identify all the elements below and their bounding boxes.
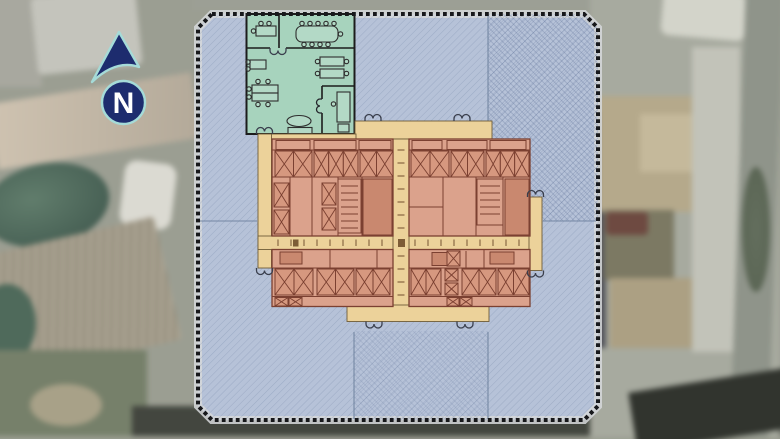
desk — [288, 128, 312, 135]
north-arrow-needle-icon — [92, 32, 139, 82]
elevator-shaft — [411, 269, 426, 295]
elevator-shaft — [514, 269, 530, 295]
elevator-shaft — [479, 269, 496, 295]
elevator-shaft — [426, 269, 441, 295]
elevator-shaft — [356, 269, 373, 295]
elevator-shaft — [430, 151, 449, 177]
elevator-shaft — [411, 151, 430, 177]
chair — [308, 21, 312, 25]
chair — [256, 102, 260, 106]
stair-shaft — [447, 298, 459, 307]
chair — [315, 59, 319, 63]
elevator-shaft — [451, 151, 468, 177]
chair — [316, 21, 320, 25]
elevator-shaft — [498, 269, 514, 295]
desk — [256, 26, 276, 36]
elevator-shaft — [314, 151, 329, 177]
chair — [247, 95, 251, 99]
elevator-shaft — [275, 269, 294, 295]
chair — [267, 21, 271, 25]
elevator-shaft — [343, 151, 358, 177]
stair-shaft — [289, 298, 302, 307]
corridor-band-right — [529, 197, 542, 271]
table — [287, 116, 311, 127]
elevator-shaft — [377, 151, 394, 177]
stair-shaft — [275, 298, 288, 307]
desk — [320, 57, 344, 66]
elevator-shaft — [336, 269, 355, 295]
floor-plan-overlay: N — [0, 0, 780, 439]
stair-shaft — [322, 183, 336, 205]
desk — [252, 93, 278, 101]
conference-table — [296, 26, 338, 42]
core-room-shaded — [490, 252, 514, 264]
chair — [246, 60, 250, 64]
chair — [259, 21, 263, 25]
elevator-shaft — [462, 269, 479, 295]
map-scene: N — [0, 0, 780, 439]
chair — [247, 87, 251, 91]
north-arrow: N — [92, 32, 145, 124]
desk — [252, 85, 278, 93]
elevator-shaft — [500, 151, 514, 177]
stair-shaft — [460, 298, 472, 307]
corridor-strip — [258, 134, 356, 139]
office-suite — [246, 14, 355, 134]
corridor-marker — [398, 239, 405, 247]
stair-shaft — [447, 251, 460, 266]
chair — [331, 102, 335, 106]
elevator-shaft — [275, 151, 294, 177]
chair — [266, 79, 270, 83]
chair — [344, 71, 348, 75]
chair — [266, 102, 270, 106]
core-room-shaded — [432, 253, 448, 266]
core-room-shaded — [280, 252, 302, 264]
elevator-shaft — [294, 151, 313, 177]
elevator-shaft — [486, 151, 500, 177]
elevator-shaft — [515, 151, 529, 177]
elevator-shaft — [294, 269, 313, 295]
chair — [315, 71, 319, 75]
chair — [256, 79, 260, 83]
floor-plate-hatch-dense — [354, 331, 488, 420]
chair — [310, 42, 314, 46]
chair — [332, 21, 336, 25]
core-room-shaded — [363, 179, 392, 235]
corridor-vertical — [393, 139, 409, 306]
stair-shaft — [445, 283, 458, 295]
chair — [326, 42, 330, 46]
desk — [250, 60, 266, 69]
stair-shaft — [445, 269, 458, 281]
chair — [302, 42, 306, 46]
stair-shaft — [322, 208, 336, 230]
corridor-stub-top — [355, 121, 492, 139]
chair — [324, 21, 328, 25]
north-label: N — [113, 87, 135, 120]
elevator-shaft — [360, 151, 377, 177]
elevator-shaft — [468, 151, 485, 177]
stair-shaft — [274, 183, 289, 207]
chair — [338, 32, 342, 36]
elevator-shaft — [329, 151, 344, 177]
chair — [251, 29, 255, 33]
desk — [337, 92, 350, 122]
chair — [344, 59, 348, 63]
core-room-shaded — [505, 179, 529, 235]
chair — [300, 21, 304, 25]
elevator-shaft — [373, 269, 390, 295]
elevator-shaft — [317, 269, 336, 295]
stair-shaft — [274, 210, 289, 234]
corridor-stub-bottom — [347, 305, 489, 322]
chair — [246, 67, 250, 71]
corridor-marker — [293, 240, 299, 247]
desk — [338, 124, 349, 132]
desk — [320, 69, 344, 78]
chair — [318, 42, 322, 46]
